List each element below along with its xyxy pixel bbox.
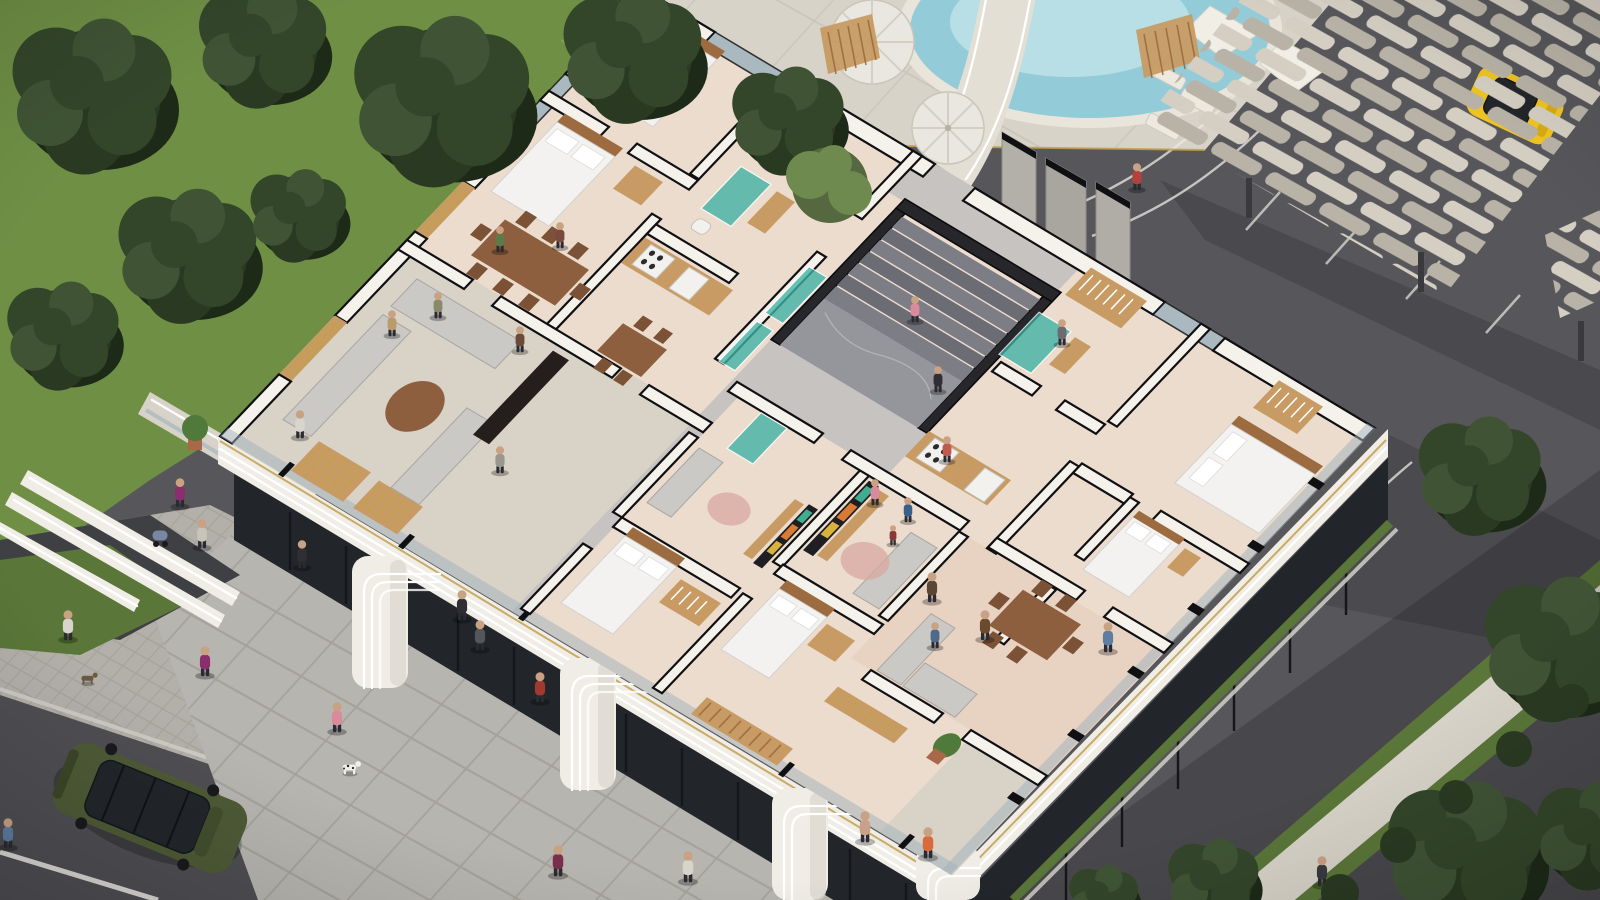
render-stage <box>0 0 1600 900</box>
architectural-render <box>0 0 1600 900</box>
canopy-post <box>1578 321 1584 361</box>
patio-umbrella <box>912 92 984 164</box>
canopy-post <box>1246 178 1252 218</box>
canopy-post <box>1418 252 1424 292</box>
